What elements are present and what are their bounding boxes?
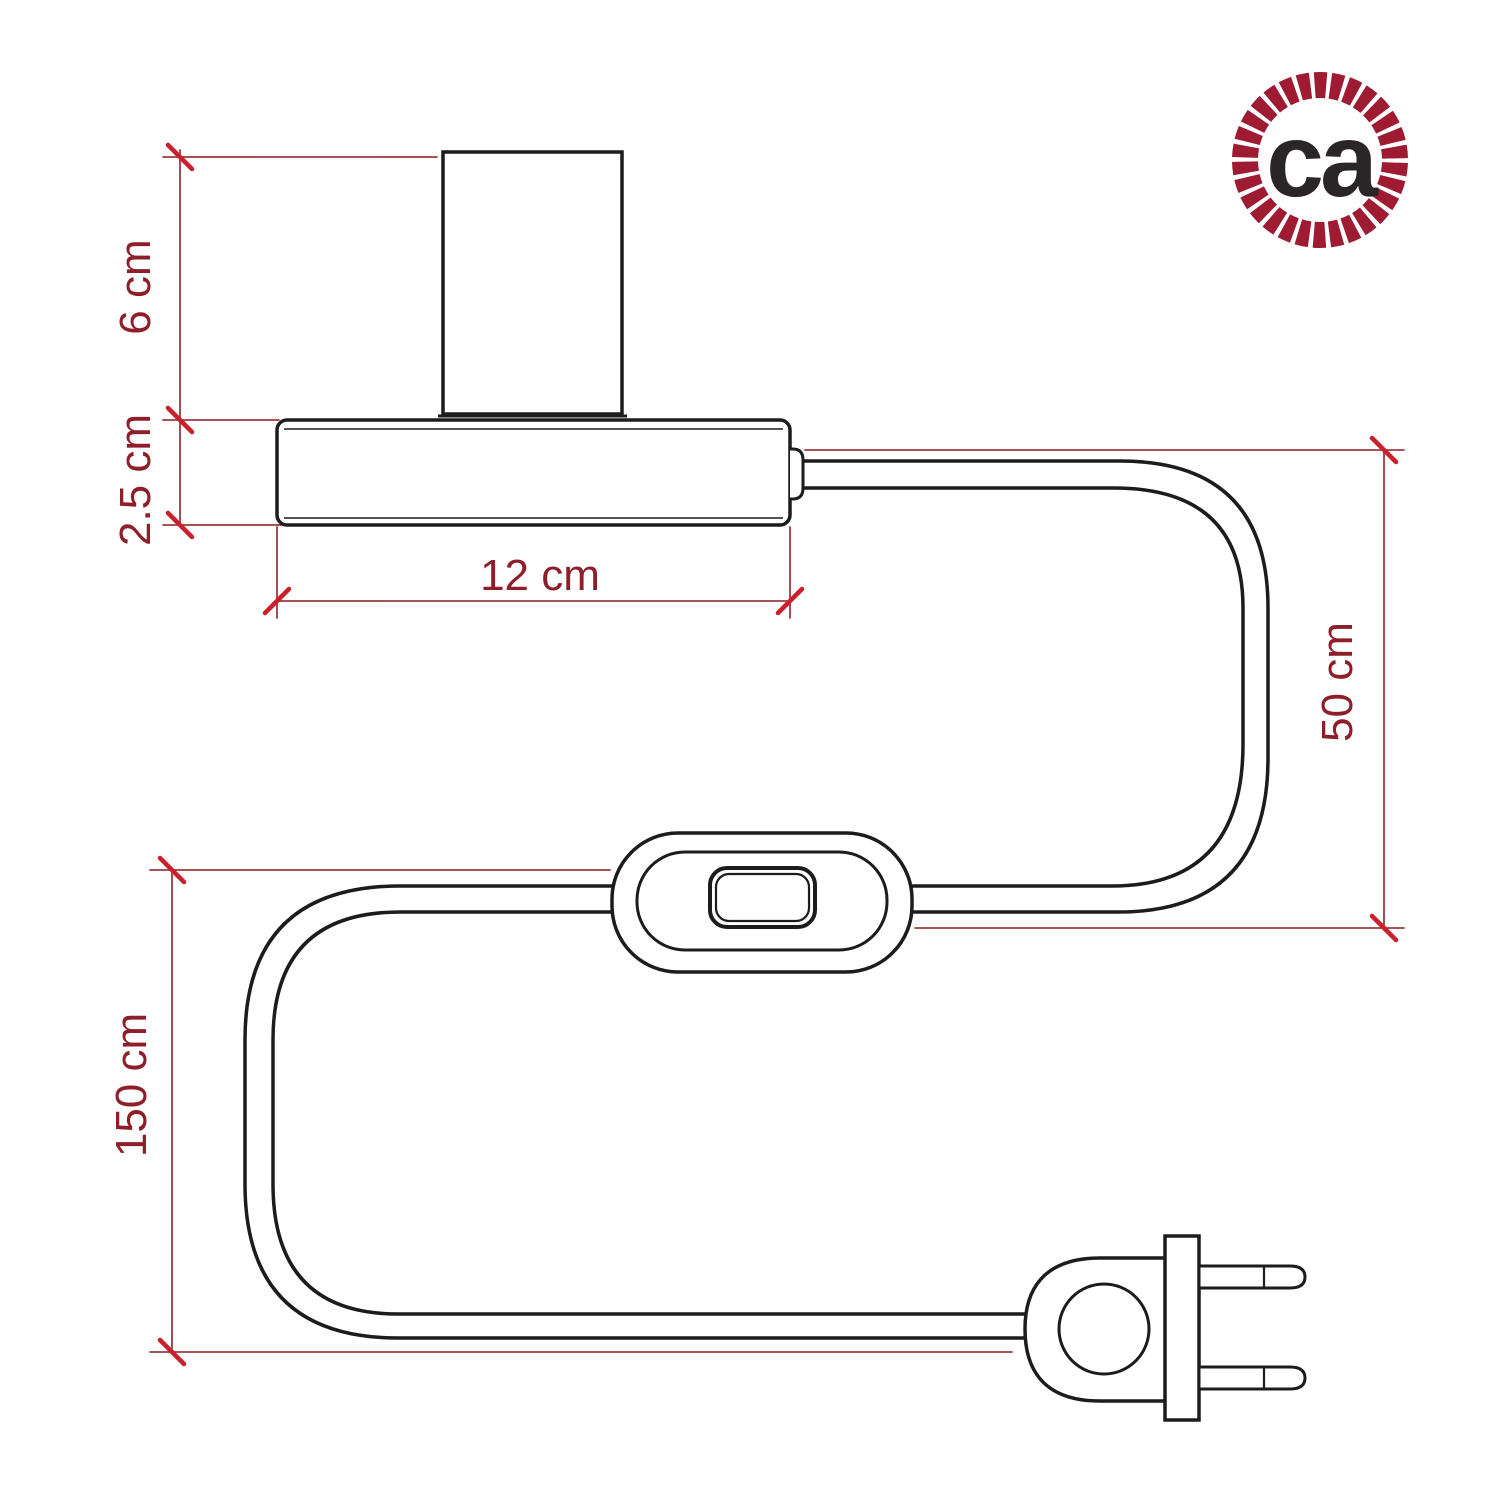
cable-inner-edge [800,488,1243,886]
dimension-diagram: 6 cm 2.5 cm 12 cm 50 cm [0,0,1500,1500]
logo-letters: ca [1266,103,1379,219]
dimension-base-width: 12 cm [265,527,802,618]
dimension-annotations: 6 cm 2.5 cm 12 cm 50 cm [107,145,1404,1364]
cable-inner-edge [273,912,1030,1314]
label-cable-drop: 50 cm [1313,622,1362,742]
plug-face-plate [1165,1236,1199,1420]
label-socket-height: 6 cm [111,239,160,334]
lamp-base [277,420,790,525]
plug-prong-top [1199,1266,1305,1288]
inline-switch [612,833,912,972]
switch-rocker-button [710,868,815,927]
label-base-width: 12 cm [480,551,600,600]
plug [1025,1236,1305,1420]
lamp-drawing [277,152,803,525]
plug-prong-bottom [1199,1367,1305,1389]
cable-gland-bump [790,449,803,499]
technical-drawing-svg: 6 cm 2.5 cm 12 cm 50 cm [0,0,1500,1500]
label-cable-length: 150 cm [107,1013,156,1157]
label-base-height: 2.5 cm [111,414,160,546]
plug-cord-grip-circle [1059,1284,1149,1374]
brand-logo: ca [1232,72,1408,248]
socket-cylinder [443,152,622,414]
